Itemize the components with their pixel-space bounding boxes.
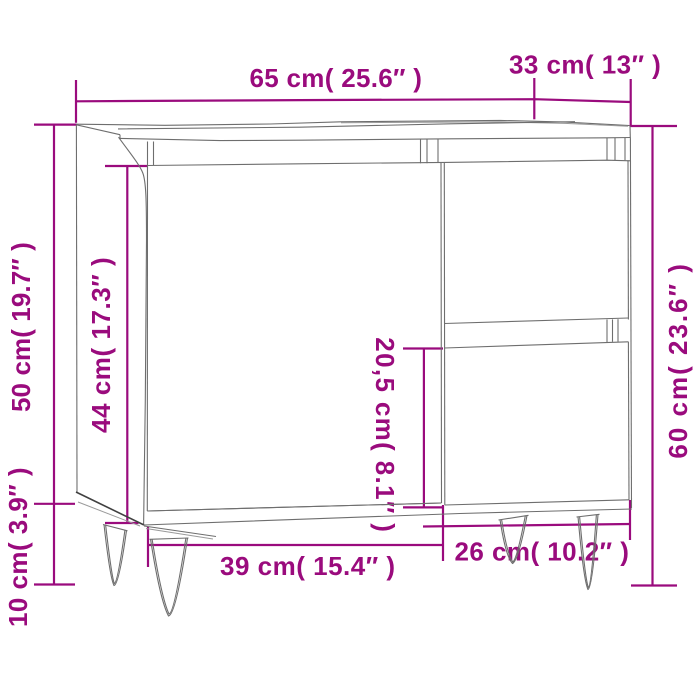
svg-text:33 cm( 13″ ): 33 cm( 13″ ) <box>509 50 661 80</box>
svg-text:39 cm( 15.4″ ): 39 cm( 15.4″ ) <box>220 551 396 581</box>
svg-text:50 cm( 19.7″ ): 50 cm( 19.7″ ) <box>6 242 36 412</box>
svg-text:10 cm( 3.9″ ): 10 cm( 3.9″ ) <box>3 467 33 627</box>
svg-text:65 cm( 25.6″ ): 65 cm( 25.6″ ) <box>250 63 423 93</box>
svg-text:60 cm( 23.6″ ): 60 cm( 23.6″ ) <box>663 262 693 459</box>
svg-text:44 cm( 17.3″ ): 44 cm( 17.3″ ) <box>86 257 116 433</box>
svg-text:26 cm( 10.2″ ): 26 cm( 10.2″ ) <box>455 537 630 567</box>
